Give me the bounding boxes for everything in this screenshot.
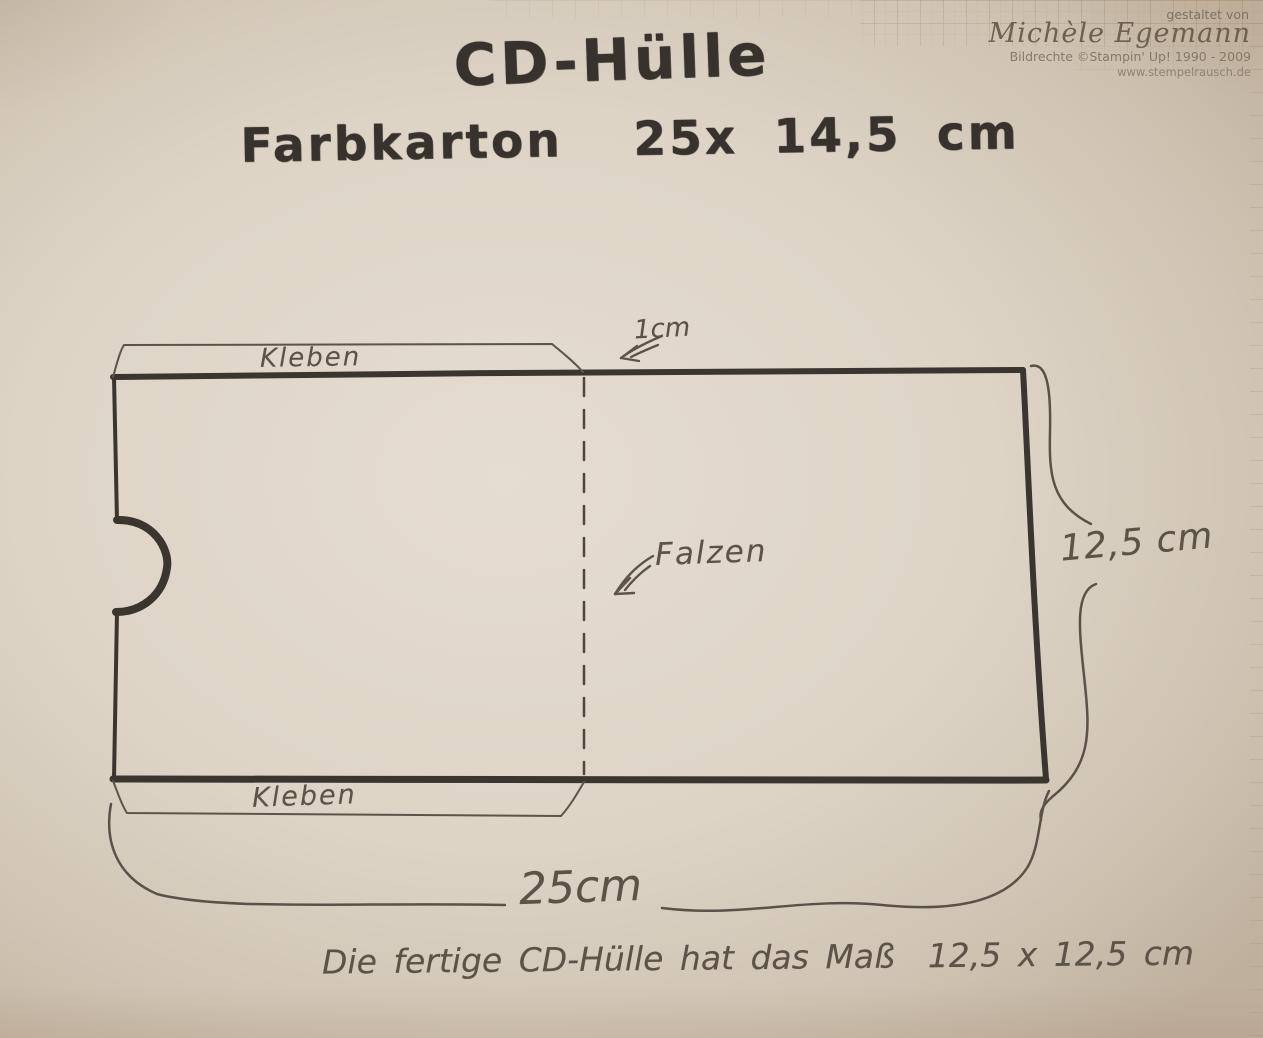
card-outline-left-upper xyxy=(114,377,117,521)
side-dimension-brace xyxy=(1031,366,1096,820)
card-outline-left-lower xyxy=(114,612,117,779)
watermark-rights: Bildrechte ©Stampin' Up! 1990 - 2009 xyxy=(989,50,1251,64)
card-outline-right xyxy=(1023,370,1046,779)
page-title: CD-Hülle xyxy=(453,20,772,99)
card-outline-top xyxy=(113,370,1023,377)
fold-label: Falzen xyxy=(654,533,768,573)
flap-depth-label: 1cm xyxy=(633,313,691,346)
bottom-dimension-label: 25cm xyxy=(518,860,643,915)
watermark: gestaltet von Michèle Egemann Bildrechte… xyxy=(989,5,1251,79)
card-outline xyxy=(113,370,1046,781)
arrow-left-icon xyxy=(615,556,653,594)
glue-label-top: Kleben xyxy=(260,342,362,374)
glue-label-bottom: Kleben xyxy=(251,779,357,814)
watermark-author: Michèle Egemann xyxy=(989,18,1251,49)
thumb-notch xyxy=(116,520,167,612)
glue-flaps xyxy=(113,344,584,816)
card-outline-bottom xyxy=(113,779,1046,781)
watermark-website: www.stempelrausch.de xyxy=(989,66,1251,79)
